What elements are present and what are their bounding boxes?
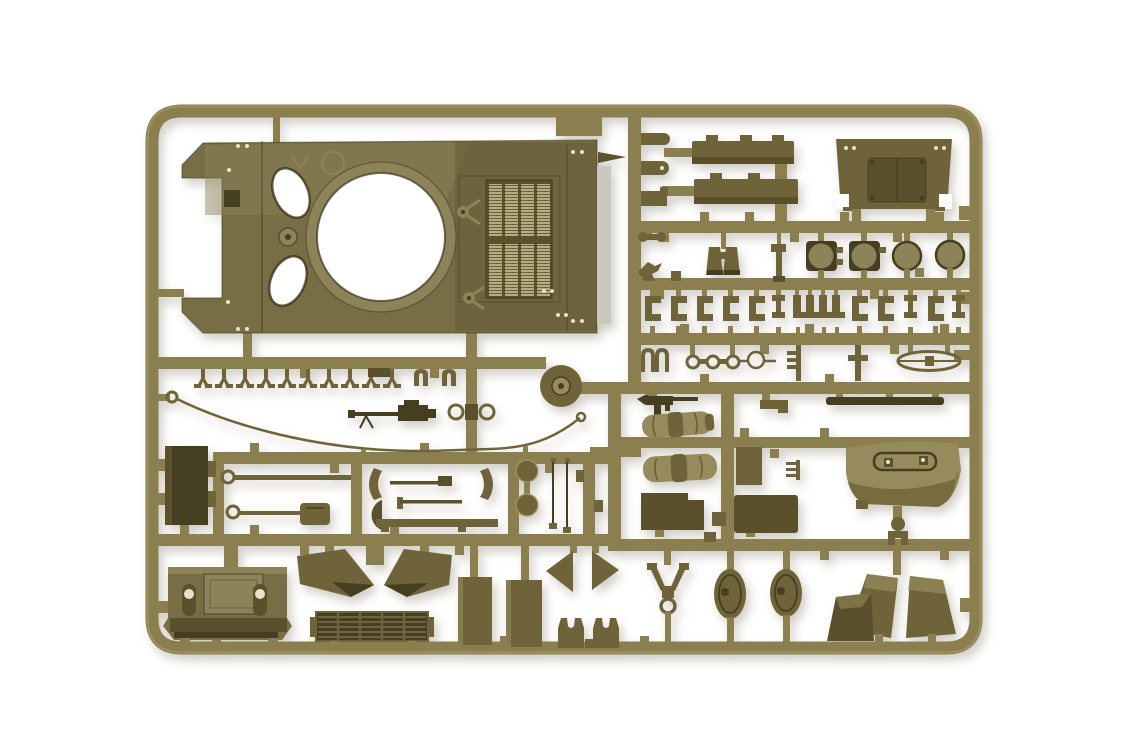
curved-shield-cover <box>846 438 961 509</box>
headlight-right <box>253 584 267 616</box>
sprue-photo <box>0 0 1130 748</box>
small-plate-part <box>736 447 762 485</box>
idler-wheel <box>540 365 582 407</box>
upper-hull-part <box>182 140 626 333</box>
headlight-left <box>182 584 196 616</box>
turret-ring-opening <box>306 162 456 312</box>
dark-panel-2 <box>734 495 798 533</box>
rolled-tarp-2 <box>642 452 717 484</box>
small-trident <box>786 460 800 480</box>
frame-tab <box>556 111 602 136</box>
runner-knob-parts <box>641 133 670 206</box>
photo-stage <box>0 0 1130 748</box>
hull-front-tab <box>224 190 240 207</box>
hull-edge-highlight <box>597 166 611 324</box>
